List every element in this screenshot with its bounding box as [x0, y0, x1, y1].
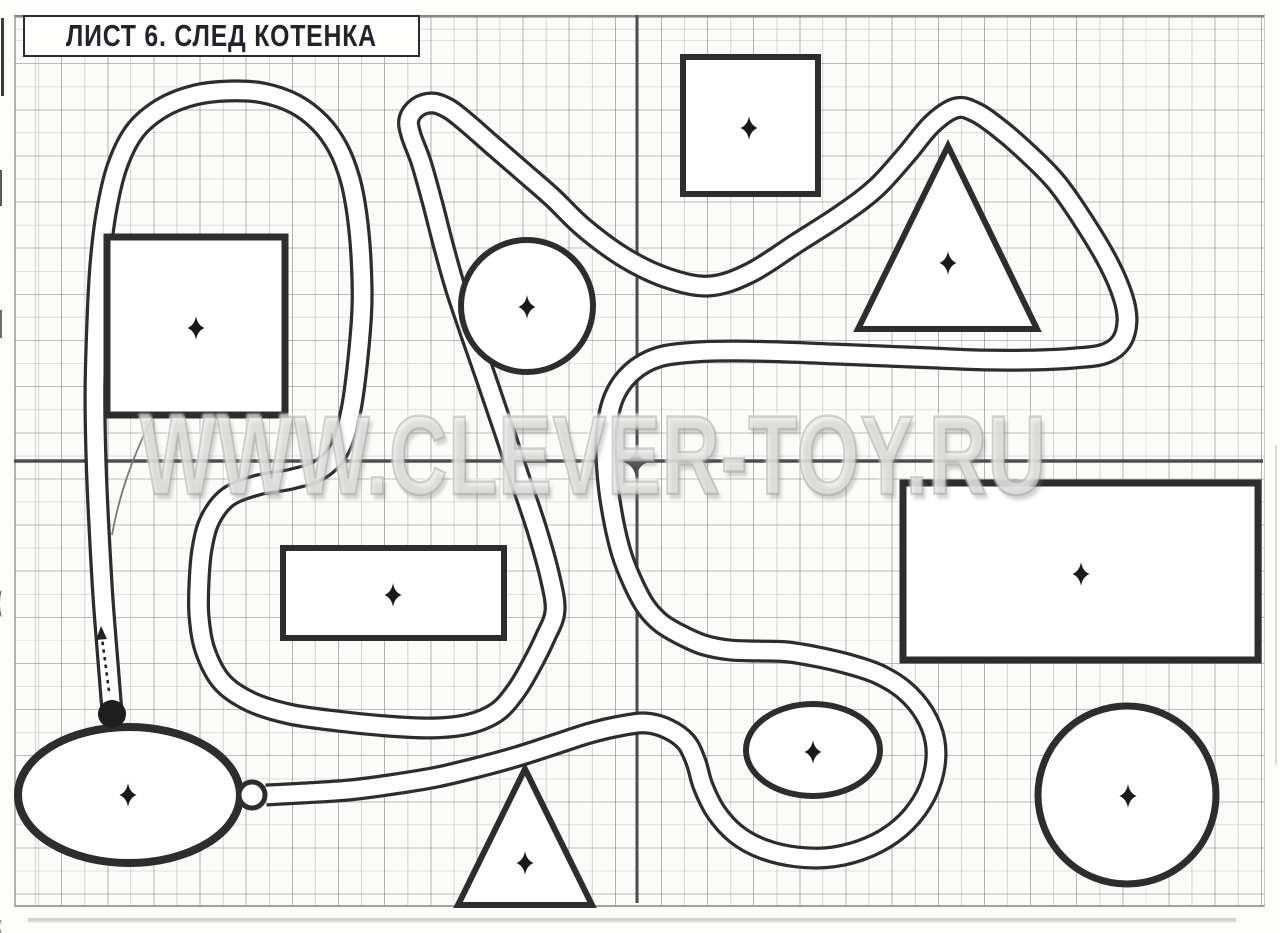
worksheet-svg	[0, 0, 1280, 933]
grid-center-star	[623, 445, 649, 479]
sheet-title-box: ЛИСТ 6. СЛЕД КОТЕНКА	[23, 15, 420, 57]
trail-start-dot	[98, 700, 126, 728]
sheet-title: ЛИСТ 6. СЛЕД КОТЕНКА	[66, 18, 377, 54]
trail-end-ring	[239, 782, 265, 808]
scanned-worksheet-page: WWW.CLEVER-TOY.RU ЛИСТ 6. СЛЕД КОТЕНКА	[0, 0, 1280, 933]
scan-crease-line	[112, 418, 152, 535]
bottom-triangle	[458, 769, 592, 905]
